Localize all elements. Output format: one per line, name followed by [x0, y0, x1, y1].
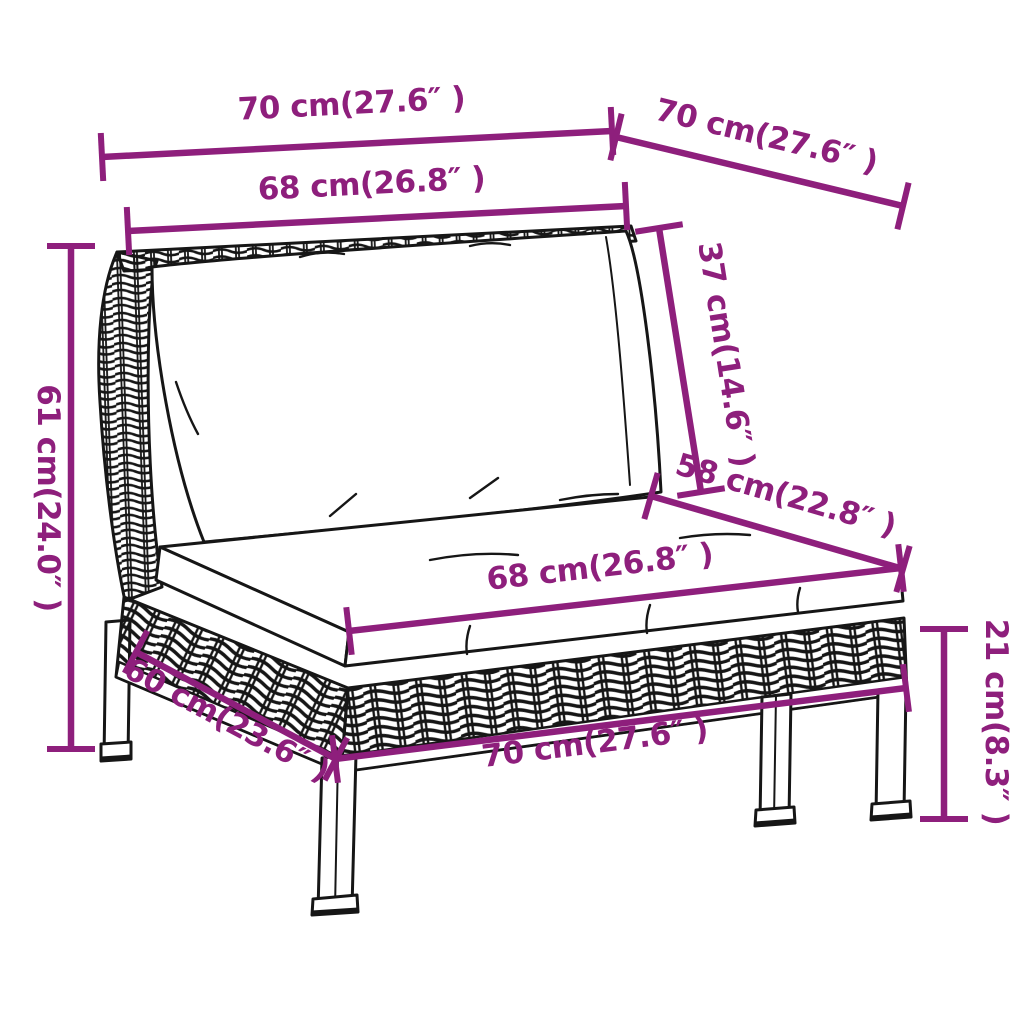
sofa-leg-rear-right — [871, 687, 911, 820]
dimension-line — [128, 206, 626, 231]
dimension-line — [127, 207, 129, 255]
dimension-label: 70 cm(27.6″ ) — [652, 92, 882, 181]
dimension-label: 61 cm(24.0″ ) — [30, 384, 66, 612]
sofa-leg-front-right — [755, 694, 795, 826]
dimension-line — [101, 133, 103, 181]
dimension-label: 70 cm(27.6″ ) — [237, 80, 466, 127]
dimension-label: 21 cm(8.3″ ) — [978, 619, 1014, 826]
dimension-line — [635, 224, 682, 232]
dimension-total-height: 61 cm(24.0″ ) — [30, 246, 95, 749]
dimension-label: 37 cm(14.6″ ) — [690, 239, 761, 469]
dimension-top-depth: 70 cm(27.6″ ) — [610, 92, 908, 229]
back-cushion — [152, 231, 661, 542]
dimension-leg-height: 21 cm(8.3″ ) — [920, 619, 1014, 826]
sofa-dimension-diagram: 70 cm(27.6″ )70 cm(27.6″ )68 cm(26.8″ )3… — [0, 0, 1024, 1024]
dimension-line — [625, 182, 627, 230]
diagram-canvas: 70 cm(27.6″ )70 cm(27.6″ )68 cm(26.8″ )3… — [0, 0, 1024, 1024]
dimension-line — [102, 131, 612, 157]
dimension-label: 68 cm(26.8″ ) — [257, 160, 486, 207]
